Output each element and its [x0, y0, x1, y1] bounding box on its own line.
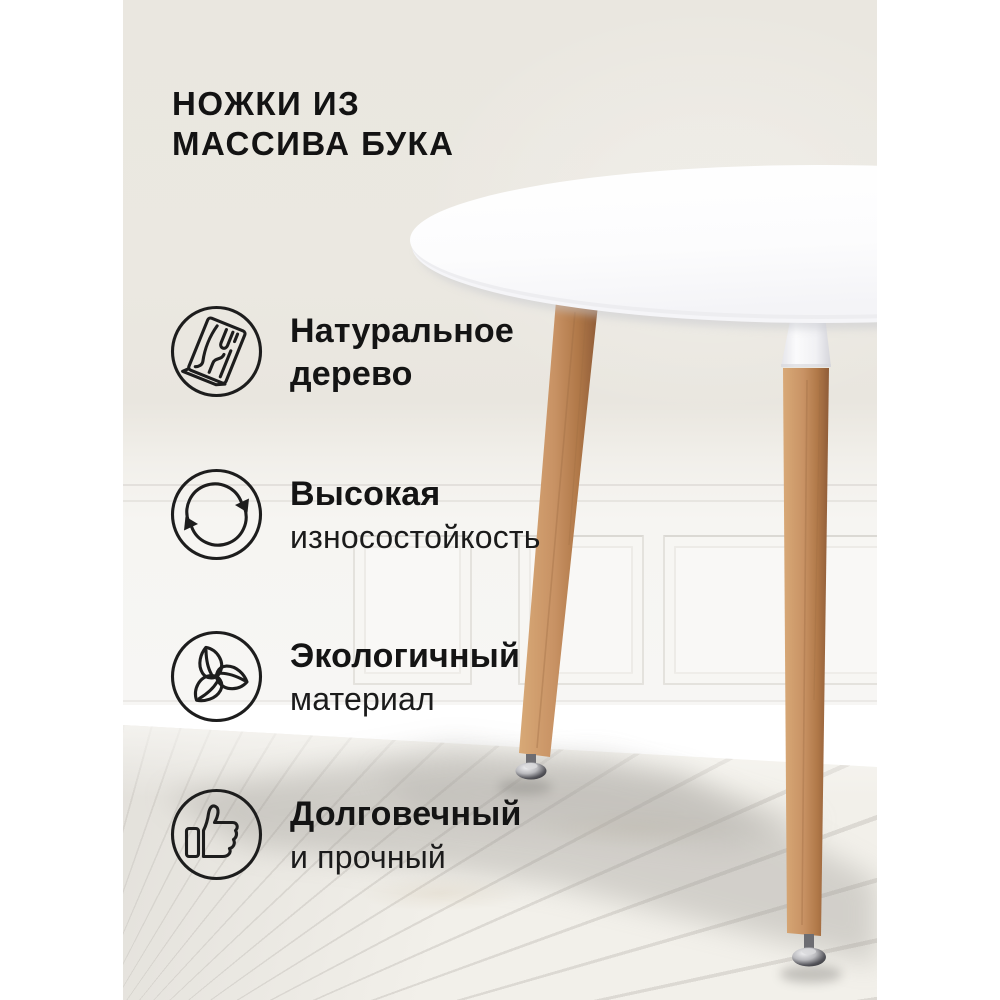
page-title-line2: МАССИВА БУКА — [172, 124, 454, 164]
wood-plank-icon — [170, 305, 263, 398]
feature-text: Долговечный и прочный — [290, 788, 522, 878]
feature-subtitle: дерево — [290, 353, 514, 395]
feature-subtitle: и прочный — [290, 836, 522, 878]
feature-title: Долговечный — [290, 793, 522, 836]
feature-durable: Долговечный и прочный — [170, 788, 522, 881]
feature-text: Экологичный материал — [290, 630, 520, 720]
feature-text: Натуральное дерево — [290, 305, 514, 395]
feature-text: Высокая износостойкость — [290, 468, 541, 558]
eco-leaves-icon — [170, 630, 263, 723]
feature-subtitle: износостойкость — [290, 516, 541, 558]
thumbs-up-icon — [170, 788, 263, 881]
feature-title: Высокая — [290, 473, 541, 516]
page-title: НОЖКИ ИЗ МАССИВА БУКА — [172, 84, 454, 164]
feature-title: Экологичный — [290, 635, 520, 678]
cycle-arrows-icon — [170, 468, 263, 561]
feature-subtitle: материал — [290, 678, 520, 720]
feature-wear-resistance: Высокая износостойкость — [170, 468, 541, 561]
feature-title: Натуральное — [290, 310, 514, 353]
page-title-line1: НОЖКИ ИЗ — [172, 84, 454, 124]
feature-natural-wood: Натуральное дерево — [170, 305, 514, 398]
info-overlay: НОЖКИ ИЗ МАССИВА БУКА Натуральное дер — [0, 0, 1000, 1000]
feature-eco-material: Экологичный материал — [170, 630, 520, 723]
product-card: НОЖКИ ИЗ МАССИВА БУКА Натуральное дер — [0, 0, 1000, 1000]
